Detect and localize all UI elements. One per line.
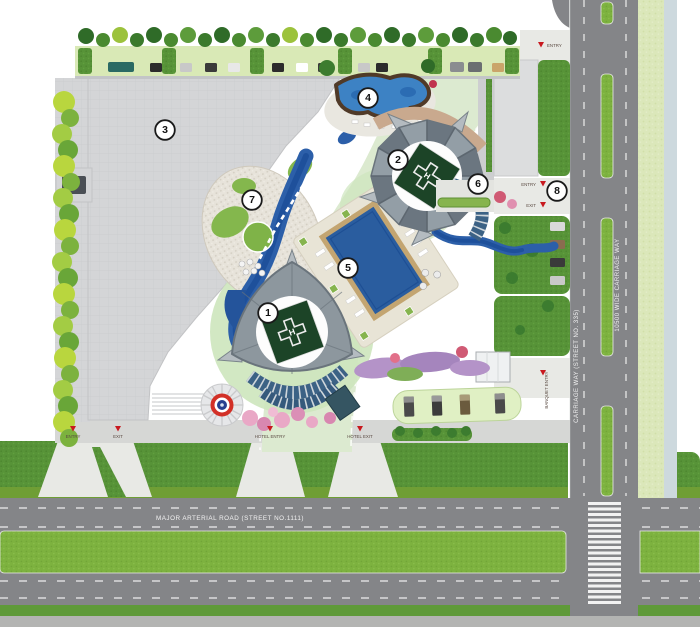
svg-text:ENTRY: ENTRY bbox=[547, 43, 562, 48]
svg-text:HOTEL ENTRY: HOTEL ENTRY bbox=[255, 434, 286, 439]
svg-text:2: 2 bbox=[395, 154, 401, 166]
site-plan-canvas: H H bbox=[0, 0, 700, 627]
svg-text:EXIT: EXIT bbox=[526, 203, 536, 208]
marker-1: 1 bbox=[258, 303, 278, 323]
marker-8: 8 bbox=[547, 181, 567, 201]
svg-text:ENTRY: ENTRY bbox=[521, 182, 536, 187]
svg-text:3: 3 bbox=[162, 124, 168, 136]
carriage-way-median bbox=[601, 2, 613, 496]
road-label-major-arterial: MAJOR ARTERIAL ROAD (STREET NO.1111) bbox=[156, 515, 304, 522]
marker-5: 5 bbox=[338, 258, 358, 278]
lavender-bed bbox=[353, 346, 490, 382]
marker-4: 4 bbox=[358, 88, 378, 108]
svg-text:1: 1 bbox=[265, 307, 271, 319]
svg-text:5: 5 bbox=[345, 262, 351, 274]
roundabout-fountain bbox=[201, 384, 243, 426]
south-sidewalk bbox=[0, 616, 700, 627]
svg-text:7: 7 bbox=[249, 194, 255, 206]
site-plan-svg: H H bbox=[0, 0, 700, 627]
svg-text:8: 8 bbox=[554, 185, 560, 197]
svg-text:6: 6 bbox=[475, 178, 481, 190]
arterial-median-east bbox=[640, 531, 700, 573]
road-label-wide-carriage-way: 10500 WIDE CARRIAGE WAY bbox=[615, 238, 621, 331]
east-footpath bbox=[664, 0, 677, 498]
marker-3: 3 bbox=[155, 120, 175, 140]
marker-7: 7 bbox=[242, 190, 262, 210]
lawn-island bbox=[243, 222, 273, 252]
svg-text:BANQUET ENTRY: BANQUET ENTRY bbox=[544, 371, 549, 408]
lawn-block-ne bbox=[538, 60, 570, 176]
marker-6: 6 bbox=[468, 174, 488, 194]
east-verge bbox=[638, 0, 664, 498]
parking-row-top bbox=[75, 46, 520, 79]
entry-planter bbox=[438, 198, 490, 207]
truck-parking bbox=[392, 387, 521, 424]
tree-border-top bbox=[78, 27, 517, 47]
road-corner-flare bbox=[552, 0, 570, 28]
road-label-carriage-way: CARRIAGE WAY (STREET NO. 335) bbox=[574, 309, 580, 423]
lawn-block-e2 bbox=[494, 296, 570, 356]
svg-text:4: 4 bbox=[365, 92, 371, 104]
flowering-tree bbox=[494, 191, 506, 203]
svg-text:EXIT: EXIT bbox=[113, 434, 123, 439]
svg-text:HOTEL EXIT: HOTEL EXIT bbox=[347, 434, 373, 439]
svg-text:ENTRY: ENTRY bbox=[66, 434, 81, 439]
marker-2: 2 bbox=[388, 150, 408, 170]
arterial-median-west bbox=[0, 531, 566, 573]
